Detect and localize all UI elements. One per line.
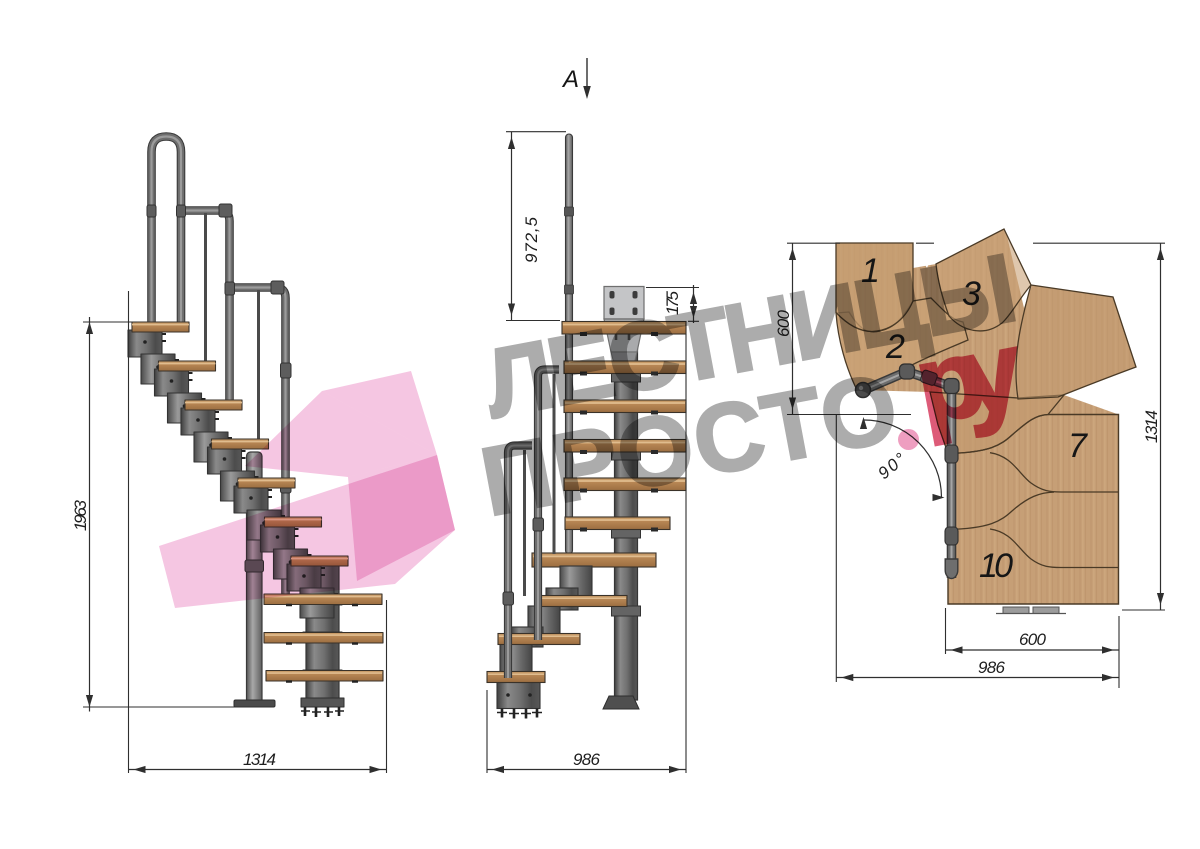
- svg-text:986: 986: [573, 750, 601, 769]
- svg-text:A: A: [561, 66, 579, 93]
- svg-text:1314: 1314: [1142, 410, 1161, 443]
- svg-text:972,5: 972,5: [522, 216, 541, 263]
- svg-text:600: 600: [1019, 630, 1047, 649]
- svg-text:1963: 1963: [71, 499, 90, 531]
- svg-text:10: 10: [979, 547, 1013, 585]
- svg-text:1314: 1314: [243, 750, 276, 769]
- svg-text:986: 986: [978, 658, 1006, 677]
- svg-text:ру: ру: [906, 307, 1032, 447]
- svg-text:7: 7: [1068, 427, 1088, 465]
